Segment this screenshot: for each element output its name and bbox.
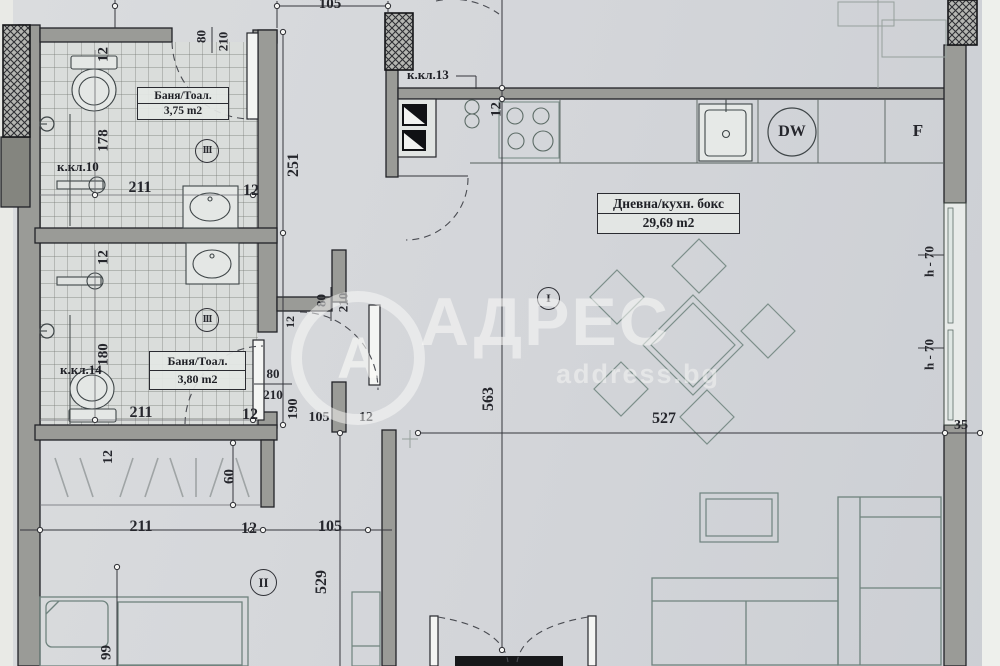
- room-index-bath1: III: [195, 139, 219, 163]
- dim-bottom-211: 211: [119, 519, 163, 535]
- dim-bath1-depth: 178: [97, 119, 112, 163]
- sink-icon: [186, 243, 239, 284]
- coffee-table-icon: [700, 493, 778, 542]
- dim-niche-105: 105: [297, 411, 341, 425]
- bath2-name: Баня/Тоал.: [150, 352, 245, 371]
- shaft-label-k10: к.кл.10: [57, 159, 99, 175]
- right-window: [918, 203, 966, 425]
- dim-window-h70-b: h - 70: [923, 333, 936, 377]
- right-wall-lower: [944, 425, 966, 666]
- nightstand-icon: [352, 592, 380, 666]
- left-shaft-column: [3, 25, 30, 137]
- bed-icon: [40, 597, 248, 666]
- dishwasher-label: DW: [772, 124, 812, 140]
- room-index-bath2: III: [195, 308, 219, 332]
- entry-door-arc: [436, 0, 499, 14]
- kitchen-sink-unit-icon: [398, 99, 436, 157]
- bath1-label-box: Баня/Тоал. 3,75 m2: [137, 87, 229, 120]
- bath2-label-box: Баня/Тоал. 3,80 m2: [149, 351, 246, 390]
- dim-bath1-wall: 12: [97, 33, 112, 77]
- living-name: Дневна/кухн. бокс: [598, 194, 739, 214]
- dim-kitchen-wall: 12: [490, 88, 505, 132]
- balcony-wall-bar: [455, 656, 563, 666]
- dim-bottom-105: 105: [308, 519, 352, 535]
- adjacent-unit-outlines: [838, 0, 946, 88]
- dim-bedroom-depth: 529: [314, 560, 330, 604]
- dim-window-h70-a: h - 70: [923, 240, 936, 284]
- sofa-icon: [652, 497, 941, 665]
- dim-bath2-door-w: 80: [251, 367, 295, 380]
- dim-bed-width: 99: [100, 631, 115, 666]
- kitchen-door-arc: [406, 178, 468, 240]
- dim-top-corridor: 105: [308, 0, 352, 12]
- bedroom-living-wall: [382, 430, 396, 666]
- room-index-bedroom: II: [250, 569, 277, 596]
- right-wall-upper: [944, 45, 966, 203]
- dim-right-wall-35: 35: [939, 419, 983, 433]
- balcony-door-arc-left: [438, 617, 508, 662]
- living-label-box: Дневна/кухн. бокс 29,69 m2: [597, 193, 740, 234]
- dim-bath2-wall: 12: [97, 236, 112, 280]
- dim-bottom-12: 12: [227, 521, 271, 537]
- dim-hall-wall: 12: [284, 300, 296, 344]
- dim-closet-depth: 60: [223, 455, 238, 499]
- bath1-name: Баня/Тоал.: [138, 88, 228, 104]
- counter-sink-icon: [699, 99, 752, 161]
- wardrobe-icon: [55, 458, 249, 497]
- left-pilaster: [1, 137, 30, 207]
- dim-bath2-len: 211: [119, 405, 163, 421]
- right-shaft-column: [948, 0, 977, 45]
- bath1-door-leaf: [247, 33, 258, 119]
- balcony-door-leaf-right: [588, 616, 596, 666]
- balcony-door-arc-right: [517, 617, 588, 662]
- dim-hall-door-h: 210: [337, 281, 350, 325]
- room-index-living: I: [537, 287, 560, 310]
- stove-icon: [465, 100, 559, 158]
- dim-hall-door-w: 80: [315, 279, 328, 323]
- dim-bath1-len: 211: [118, 180, 162, 196]
- baths-divider-wall: [35, 228, 277, 243]
- closet-stub-wall: [261, 440, 274, 507]
- bath1-area: 3,75 m2: [138, 104, 228, 119]
- dim-bath1-door-h: 210: [217, 20, 230, 64]
- dim-bath2-wall2: 12: [228, 407, 272, 423]
- bath2-bottom-wall: [35, 425, 277, 440]
- dim-closet-wall: 12: [102, 435, 116, 479]
- kk13-shaft-column: [385, 13, 413, 70]
- dining-table-icon: [590, 239, 795, 444]
- living-top-wall: [398, 88, 948, 99]
- dim-living-depth: 563: [481, 377, 497, 421]
- fridge-label: F: [905, 122, 931, 139]
- balcony-door-leaf-left: [430, 616, 438, 666]
- dim-corridor-251: 251: [286, 143, 302, 187]
- floor-plan: Баня/Тоал. 3,75 m2 Баня/Тоал. 3,80 m2 Дн…: [0, 0, 1000, 666]
- dim-bath1-door-w: 80: [195, 15, 208, 59]
- dim-living-width: 527: [642, 411, 686, 427]
- baths-right-wall-upper: [258, 30, 277, 332]
- corridor-right-wall: [386, 70, 398, 177]
- hall-door-leaf: [369, 305, 380, 385]
- kitchen: [398, 99, 944, 176]
- dim-niche-12: 12: [344, 411, 388, 425]
- dim-bath1-wall2: 12: [229, 183, 273, 199]
- shaft-label-k14: к.кл.14: [60, 362, 102, 378]
- shaft-label-k13: к.кл.13: [407, 67, 449, 83]
- living-area: 29,69 m2: [598, 214, 739, 233]
- bath2-area: 3,80 m2: [150, 371, 245, 389]
